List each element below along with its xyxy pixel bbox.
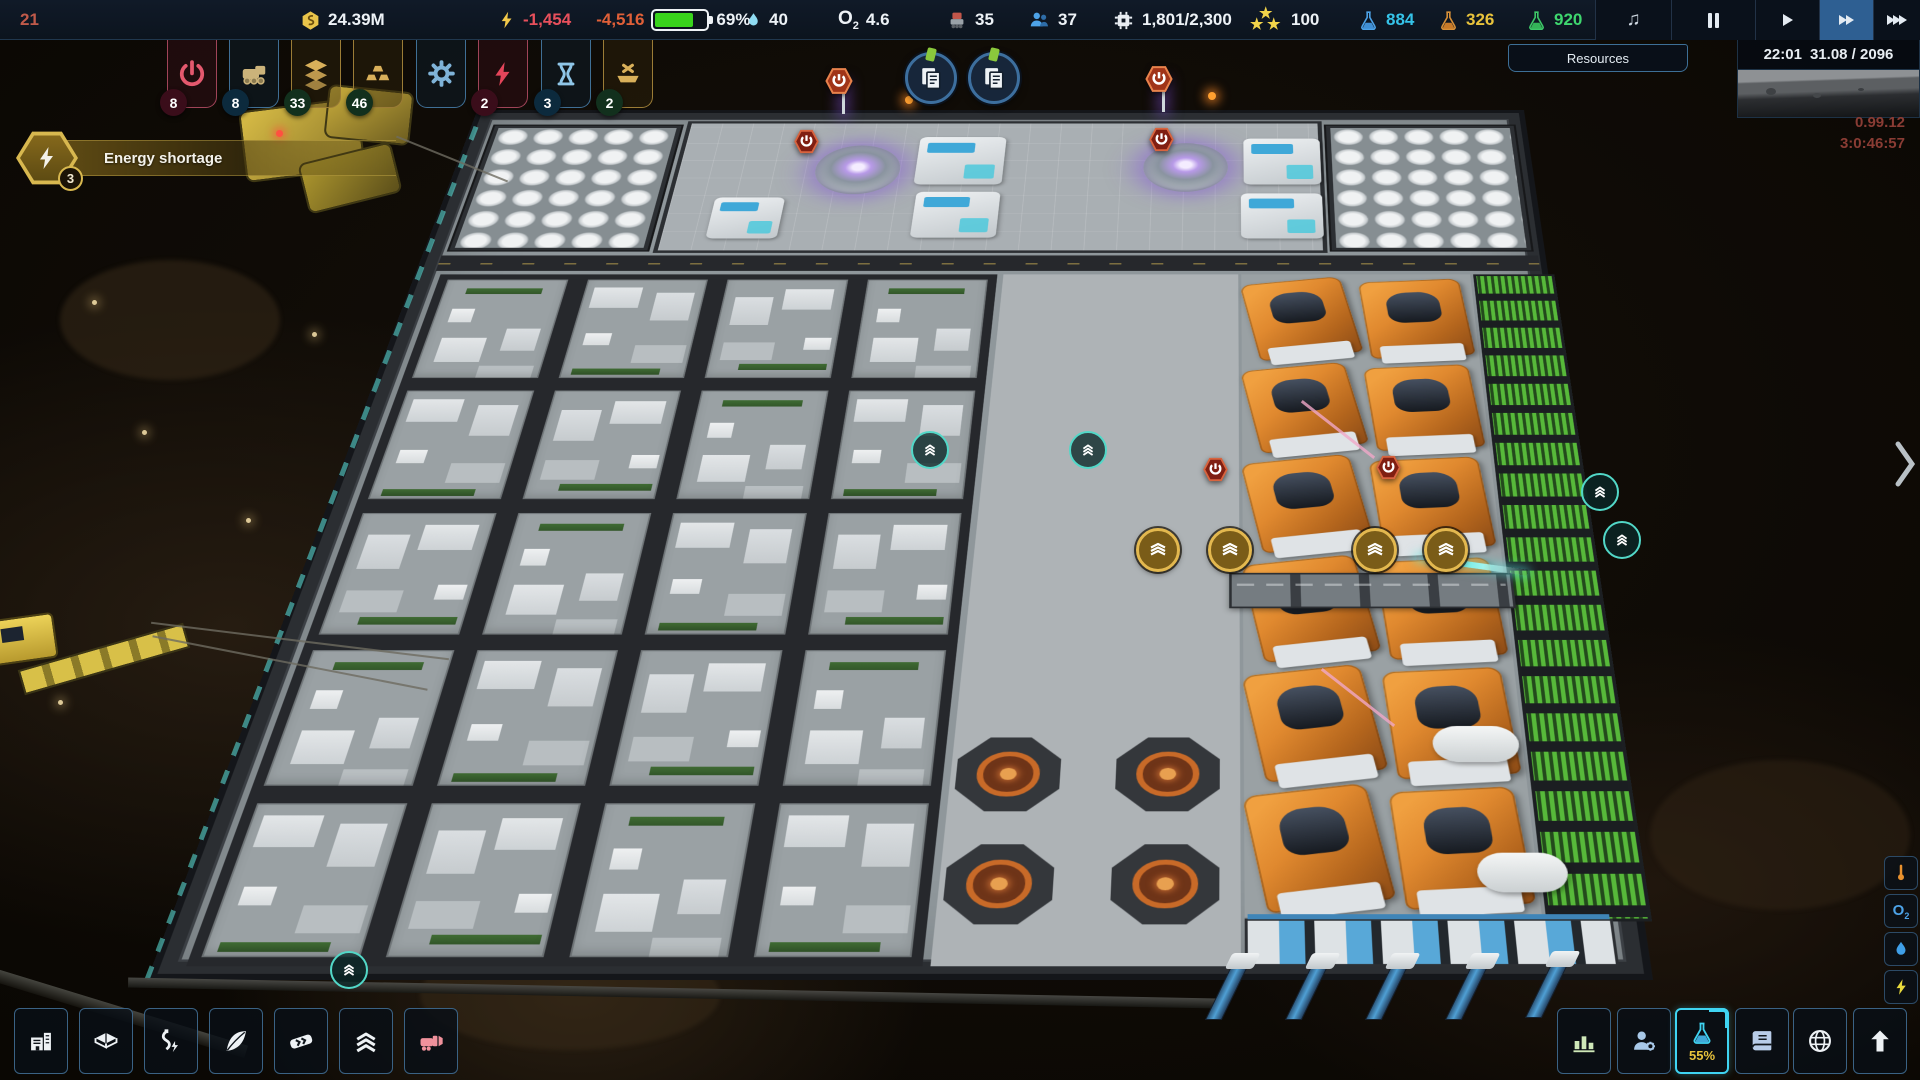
oxygen-resource[interactable]: O2 4.6 <box>838 0 890 40</box>
chevrons-icon <box>1611 529 1633 551</box>
minimap[interactable] <box>1737 70 1920 118</box>
stars-icon: ★★★ <box>1250 7 1284 33</box>
oxygen-icon: O2 <box>1893 902 1910 921</box>
residential-district <box>186 274 997 966</box>
person-gear-icon <box>1630 1027 1658 1055</box>
alert-count-badge: 3 <box>58 166 83 191</box>
landing-pad <box>952 737 1062 811</box>
power-off-icon <box>1202 456 1229 483</box>
clock-panel: 22:01 31.08 / 2096 <box>1737 40 1920 70</box>
no-power-indicator[interactable] <box>824 66 854 96</box>
resource-bar: 21 24.39M -1,454 -4,516 69% 40 O2 4.6 35… <box>0 0 1920 40</box>
up-arrow-icon <box>1866 1027 1894 1055</box>
badge: 33 <box>284 89 311 116</box>
landing-pad <box>1109 844 1219 924</box>
robots-resource[interactable]: 35 <box>946 0 994 40</box>
conveyor-icon <box>283 1023 318 1058</box>
citizens-button[interactable] <box>1617 1008 1671 1074</box>
money-resource[interactable]: 24.39M <box>300 0 385 40</box>
music-button[interactable]: ♫ <box>1595 0 1671 40</box>
badge: 2 <box>596 89 623 116</box>
chevrons-icon <box>1077 439 1099 461</box>
badge: 3 <box>534 89 561 116</box>
science-green-resource[interactable]: 920 <box>1526 0 1582 40</box>
planet-button[interactable] <box>1793 1008 1847 1074</box>
game-screen: 21 24.39M -1,454 -4,516 69% 40 O2 4.6 35… <box>0 0 1920 1080</box>
battery-indicator <box>651 9 709 31</box>
build-menu-logistics[interactable]: 3 <box>541 40 591 108</box>
chevrons-icon <box>919 439 941 461</box>
container-yard-right <box>1326 126 1531 251</box>
lightning-icon <box>35 145 59 171</box>
build-menu-vehicles[interactable]: 8 <box>229 40 279 108</box>
alert-label: Energy shortage <box>46 140 396 176</box>
tool-platforms-button[interactable] <box>79 1008 133 1074</box>
transport-indicator[interactable] <box>911 431 949 469</box>
landing-pad <box>941 844 1056 924</box>
tool-conveyors-button[interactable] <box>274 1008 328 1074</box>
side-panel-expand-button[interactable] <box>1892 438 1918 495</box>
water-overlay-toggle[interactable] <box>1884 932 1918 966</box>
resources-tooltip: Resources <box>1508 44 1688 72</box>
science-orange-resource[interactable]: 326 <box>1438 0 1494 40</box>
road <box>436 255 1540 270</box>
tool-terraform-button[interactable] <box>209 1008 263 1074</box>
storage-tank <box>1476 853 1571 893</box>
storage-tank <box>1431 726 1521 762</box>
documents-icon <box>980 64 1008 92</box>
fast-forward-button[interactable] <box>1819 0 1873 40</box>
research-progress: 55% <box>1689 1048 1715 1063</box>
build-menu-power[interactable]: 8 <box>167 40 217 108</box>
platform-ground <box>157 113 1644 974</box>
layers-icon <box>301 58 331 90</box>
storage-full-indicator[interactable] <box>1208 528 1252 572</box>
upgrades-button[interactable] <box>1853 1008 1907 1074</box>
tesla-tower <box>811 145 904 194</box>
pause-button[interactable] <box>1671 0 1755 40</box>
build-menu-resources[interactable]: 46 <box>353 40 403 108</box>
hourglass-icon <box>552 59 580 89</box>
population-resource[interactable]: 37 <box>1028 0 1077 40</box>
game-date: 31.08 / 2096 <box>1810 46 1893 63</box>
contract-notification-button[interactable] <box>968 52 1020 104</box>
transport-indicator[interactable] <box>1603 521 1641 559</box>
layers-icon <box>1434 538 1458 562</box>
layers-icon <box>1146 538 1170 562</box>
transport-indicator[interactable] <box>330 951 368 989</box>
power-off-icon <box>1144 64 1174 94</box>
layers-icon <box>1218 538 1242 562</box>
tool-buildings-button[interactable] <box>14 1008 68 1074</box>
badge: 8 <box>160 89 187 116</box>
transport-indicator[interactable] <box>1581 473 1619 511</box>
lab-building <box>705 197 785 238</box>
build-menu-storage[interactable]: 33 <box>291 40 341 108</box>
temperature-overlay-toggle[interactable] <box>1884 856 1918 890</box>
layers-icon <box>1363 538 1387 562</box>
flask-icon <box>1690 1020 1714 1046</box>
build-menu-trade[interactable]: 2 <box>603 40 653 108</box>
storage-full-indicator[interactable] <box>1424 528 1468 572</box>
robot-icon <box>946 9 968 31</box>
power-off-icon <box>793 128 820 155</box>
statistics-button[interactable] <box>1557 1008 1611 1074</box>
playback-controls: ♫ <box>1595 0 1920 40</box>
tool-demolish-button[interactable] <box>404 1008 458 1074</box>
no-power-indicator[interactable] <box>793 128 820 155</box>
fps-counter: 21 <box>20 0 39 40</box>
transport-indicator[interactable] <box>1069 431 1107 469</box>
no-power-indicator[interactable] <box>1144 64 1174 94</box>
container-yard-left <box>449 126 681 251</box>
storage-full-indicator[interactable] <box>1136 528 1180 572</box>
power-off-icon <box>1148 126 1175 153</box>
energy-shortage-alert[interactable]: Energy shortage 3 <box>16 130 396 188</box>
flask-green-icon <box>1526 9 1547 32</box>
build-menu-energy[interactable]: 2 <box>478 40 528 108</box>
globe-icon <box>1806 1027 1834 1055</box>
water-resource[interactable]: 40 <box>745 0 788 40</box>
book-icon <box>1748 1027 1776 1055</box>
play-button[interactable] <box>1755 0 1819 40</box>
energy-overlay-toggle[interactable] <box>1884 970 1918 1004</box>
lab-building <box>1241 193 1324 238</box>
version-info: 0.99.12 3:0:46:57 <box>1840 112 1905 154</box>
water-drop-icon <box>1892 940 1910 958</box>
chevrons-icon <box>1589 481 1611 503</box>
no-power-indicator[interactable] <box>1148 126 1175 153</box>
mining-crane <box>0 598 202 748</box>
contract-notification-button[interactable] <box>905 52 957 104</box>
storage-hoppers <box>1229 573 1516 608</box>
platform-icon <box>92 1027 120 1055</box>
power-off-icon <box>1375 454 1402 481</box>
encyclopedia-button[interactable] <box>1735 1008 1789 1074</box>
spark-glow <box>1208 92 1216 100</box>
fastest-forward-button[interactable] <box>1873 0 1920 40</box>
no-power-indicator[interactable] <box>1202 456 1229 483</box>
lab-building <box>910 192 1001 238</box>
landing-pad <box>1114 737 1220 811</box>
rover-icon <box>238 59 270 89</box>
flask-orange-icon <box>1438 9 1459 32</box>
flask-blue-icon <box>1358 9 1379 32</box>
compute-resource[interactable]: 1,801/2,300 <box>1112 0 1232 40</box>
thermometer-icon <box>1891 863 1911 883</box>
lightning-icon <box>498 10 516 30</box>
oxygen-icon: O2 <box>838 8 859 32</box>
feather-icon <box>222 1027 250 1055</box>
research-button[interactable]: 55% <box>1675 1008 1729 1074</box>
version-number: 0.99.12 <box>1840 112 1905 133</box>
storage-full-indicator[interactable] <box>1353 528 1397 572</box>
gold-bars-icon <box>363 59 393 89</box>
people-icon <box>1028 9 1051 31</box>
chevrons-icon <box>338 959 360 981</box>
build-menu-production[interactable] <box>416 40 466 108</box>
lab-building <box>1243 139 1321 185</box>
tool-cables-button[interactable] <box>144 1008 198 1074</box>
points-resource[interactable]: ★★★ 100 <box>1250 0 1319 40</box>
documents-icon <box>917 64 945 92</box>
chip-icon <box>1112 9 1135 32</box>
badge: 8 <box>222 89 249 116</box>
cable-icon <box>157 1027 185 1055</box>
oxygen-overlay-toggle[interactable]: O2 <box>1884 894 1918 928</box>
ship-bowl-icon <box>613 59 643 89</box>
power-off-icon <box>824 66 854 96</box>
credits-coin-icon <box>300 10 321 31</box>
gear-icon <box>426 58 457 89</box>
bulldozer-icon <box>416 1027 446 1055</box>
spark-glow <box>905 96 913 104</box>
session-timer: 3:0:46:57 <box>1840 133 1905 154</box>
lightning-icon <box>1893 978 1910 996</box>
no-power-indicator[interactable] <box>1375 454 1402 481</box>
chevron-right-icon <box>1892 438 1918 490</box>
lightning-icon <box>490 59 516 89</box>
tool-levels-button[interactable] <box>339 1008 393 1074</box>
energy-resource[interactable]: -1,454 -4,516 69% <box>498 0 750 40</box>
game-time: 22:01 <box>1764 46 1802 63</box>
water-drop-icon <box>745 10 762 30</box>
chevrons-up-icon <box>352 1027 380 1055</box>
spaceport-pad <box>653 121 1328 253</box>
bar-chart-icon <box>1570 1027 1598 1055</box>
science-blue-resource[interactable]: 884 <box>1358 0 1414 40</box>
badge: 46 <box>346 89 373 116</box>
lab-building <box>913 137 1006 184</box>
power-icon <box>177 59 207 89</box>
buildings-icon <box>27 1027 55 1055</box>
badge: 2 <box>471 89 498 116</box>
